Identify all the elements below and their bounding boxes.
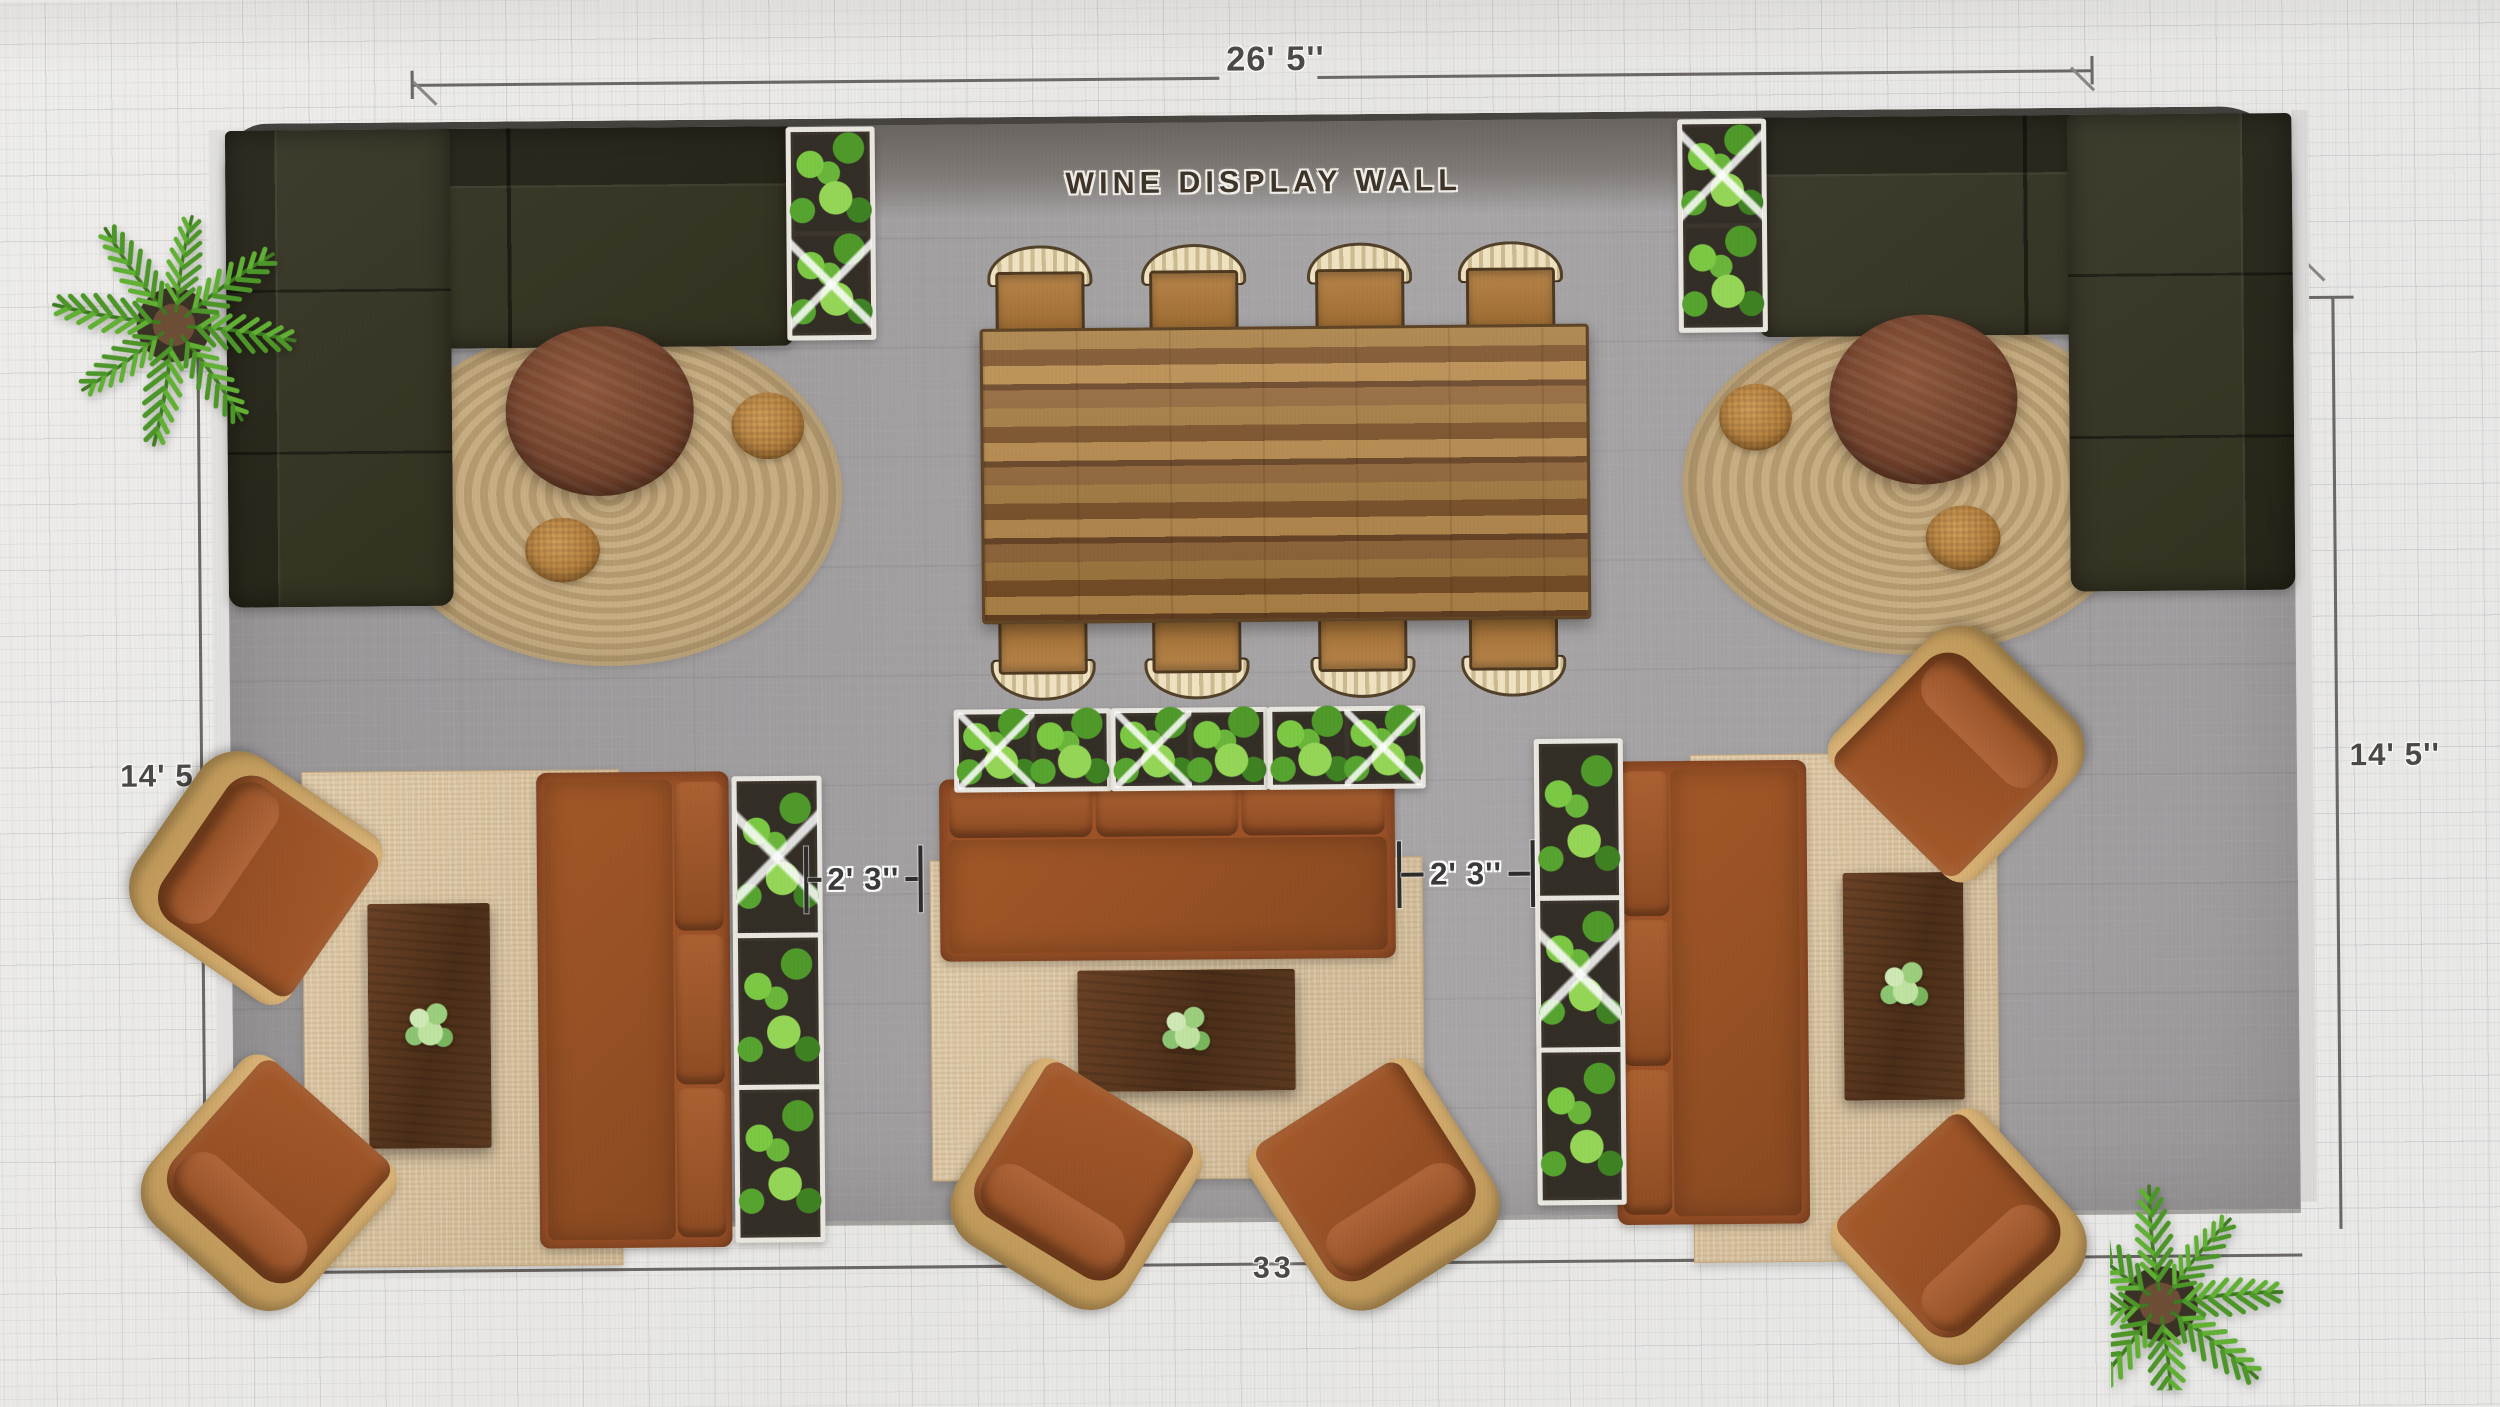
sectional-sofa-top-right-vertical[interactable] [2067,113,2296,592]
planter-box[interactable] [1110,707,1269,791]
planter-box[interactable] [1677,119,1768,333]
table-plant[interactable] [1872,956,1937,1015]
dimension-label-bottom: 33 [1253,1251,1295,1286]
sofa-seat [1671,768,1802,1216]
dimension-stub [808,878,821,882]
planter-box[interactable] [786,126,877,340]
plant [728,1078,832,1249]
gap-dimension-left: 2' 3'' [804,846,923,914]
pouf[interactable] [1719,384,1792,451]
palm-plant[interactable] [2109,1115,2385,1391]
dimension-stub [906,877,919,881]
planter-box[interactable] [733,932,824,1091]
plant [1530,1041,1633,1212]
planter-box[interactable] [1534,738,1624,902]
planter-box[interactable] [734,1084,825,1243]
plant [1672,214,1774,339]
plant [1528,732,1631,908]
dimension-label-top: 26' 5'' [1226,39,1325,79]
plan-canvas: WINE DISPLAY WALL 26' 5'' 14' 5 14' 5'' … [0,0,2500,1407]
dimension-stub [1401,873,1424,877]
planter-box[interactable] [1267,706,1426,790]
dimension-label-right: 14' 5'' [2349,736,2440,773]
palm-plant[interactable] [36,187,312,463]
planter-cell [1035,716,1104,783]
planter-box[interactable] [1535,895,1625,1054]
sofa-seat [948,836,1388,953]
planter-cell [1192,715,1261,782]
dimension-tick [1531,840,1536,907]
plant [727,926,831,1097]
pouf[interactable] [1925,505,2000,570]
dining-table[interactable] [980,324,1592,625]
gap-dimension-left-label: 2' 3'' [821,861,906,898]
sofa-back-cushions [674,781,727,1237]
planter-cell [794,135,868,232]
round-coffee-table[interactable] [505,325,695,497]
sofa-right[interactable] [1614,760,1810,1225]
planter-cell [1685,127,1759,224]
dimension-tick [918,846,923,913]
sofa-left[interactable] [536,771,732,1248]
sofa-seat [544,780,676,1241]
pouf[interactable] [731,392,804,459]
sofa-center[interactable] [939,776,1396,962]
gap-dimension-right: 2' 3'' [1397,840,1535,908]
plant [1529,889,1632,1060]
floor-plan-screenshot: WINE DISPLAY WALL 26' 5'' 14' 5 14' 5'' … [0,0,2500,1407]
planter-cell [1542,746,1616,893]
planter-cell [1543,903,1617,1045]
planter-cell [795,236,869,333]
table-plant[interactable] [396,997,461,1056]
dimension-label-left: 14' 5 [120,758,194,795]
dimension-tick [2090,56,2093,84]
dimension-tick [2309,296,2354,299]
planter-box[interactable] [954,708,1113,792]
planter-cell [741,941,816,1083]
plant [1334,699,1431,795]
planter-cell [742,1092,817,1234]
planter-cell [1349,714,1418,781]
room-floor [225,106,2301,1227]
table-plant[interactable] [1153,1001,1218,1060]
gap-dimension-right-label: 2' 3'' [1424,856,1509,893]
wall-label: WINE DISPLAY WALL [1065,164,1462,202]
pouf[interactable] [525,517,600,582]
planter-cell [1686,228,1760,325]
dimension-stub [1508,872,1531,876]
planter-cell [1545,1055,1619,1197]
planter-box[interactable] [1536,1047,1626,1206]
round-coffee-table[interactable] [1829,314,2019,486]
plant [780,221,882,346]
